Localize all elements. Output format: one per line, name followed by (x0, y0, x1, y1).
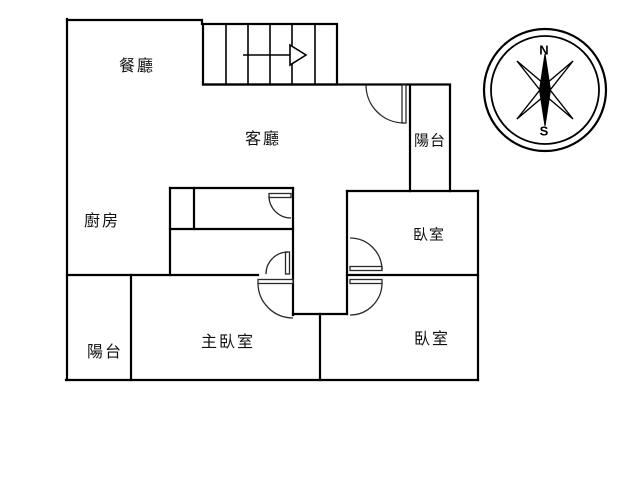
door-leaf (269, 194, 291, 198)
door-swing-arc (258, 283, 293, 318)
room-label-balcony-upper: 陽台 (414, 130, 446, 151)
stairs (203, 24, 337, 85)
wall-top-left (67, 20, 202, 24)
door-swing-arc (350, 238, 382, 270)
door-swing-arc (266, 252, 288, 274)
room-label-living: 客廳 (245, 125, 281, 149)
room-label-balcony-lower: 陽台 (87, 338, 123, 362)
room-label-bedroom-upper: 臥室 (413, 224, 445, 245)
door-leaf (286, 252, 290, 274)
compass-north-label: N (539, 43, 548, 58)
door-leaf (350, 280, 382, 284)
compass-star-icon (517, 54, 573, 126)
stairs-direction-arrow-icon (243, 45, 306, 65)
floor-plan-canvas: 餐廳 客廳 廚房 陽台 臥室 臥室 主臥室 陽台 N S (0, 0, 640, 480)
floor-plan-drawing (0, 0, 640, 480)
door-leaf (402, 85, 406, 123)
room-label-kitchen: 廚房 (84, 207, 120, 231)
compass-south-label: S (540, 124, 549, 139)
door-leaf (258, 280, 293, 284)
room-label-bedroom-lower: 臥室 (414, 325, 450, 349)
room-label-dining: 餐廳 (119, 52, 155, 76)
door-swing-arc (350, 283, 382, 315)
door-swing-arc (269, 196, 291, 218)
room-label-master-bedroom: 主臥室 (201, 328, 255, 352)
door-leaf (350, 267, 382, 271)
door-swing-arc (366, 85, 404, 123)
doors (258, 85, 406, 318)
